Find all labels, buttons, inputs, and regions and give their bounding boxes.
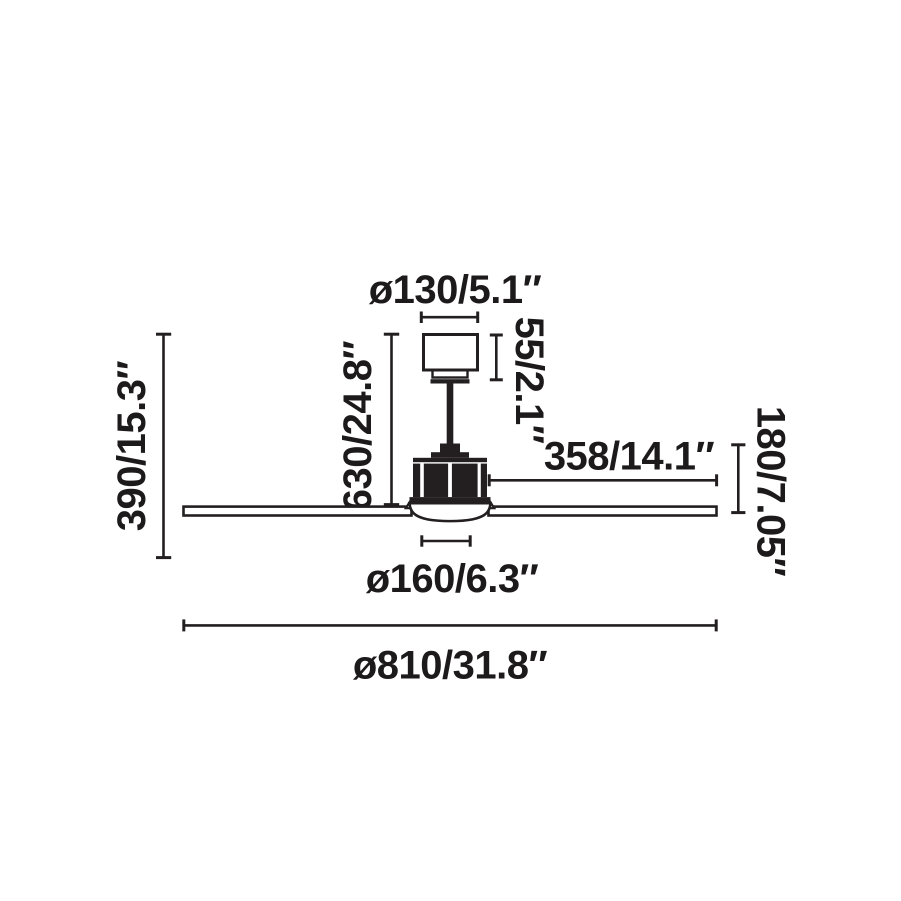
motor-cage-segment <box>481 464 487 498</box>
light-diffuser <box>410 503 491 521</box>
dim-canopy-diameter <box>421 312 478 324</box>
dim-label-canopy-height: 55/2.1″ <box>507 317 551 444</box>
dim-label-light-diameter: ø160/6.3″ <box>366 557 539 601</box>
canopy <box>424 335 478 371</box>
dim-label-blade-length: 358/14.1″ <box>544 435 715 479</box>
dim-body-height <box>731 445 745 513</box>
blade-right <box>489 507 717 516</box>
dim-light-diameter <box>422 535 470 546</box>
motor-bottom-plate <box>410 497 491 502</box>
dim-label-drop-height: 630/24.8″ <box>336 340 380 511</box>
fan-drawing <box>184 335 717 522</box>
fan-dimension-diagram: ø130/5.1″ 55/2.1″ 630/24.8″ 390/15.3″ 35… <box>0 0 901 901</box>
dim-label-body-height: 180/7.05″ <box>749 406 793 577</box>
motor-cage-segment <box>452 464 478 498</box>
dim-label-total-height: 390/15.3″ <box>110 360 154 531</box>
dim-canopy-height <box>490 335 503 380</box>
downrod <box>447 384 454 445</box>
motor-top-plate <box>413 458 487 462</box>
dim-drop-height <box>384 334 399 504</box>
dim-label-fan-diameter: ø810/31.8″ <box>353 644 548 688</box>
motor-cage-segment <box>413 464 420 498</box>
motor-cage-segment <box>424 464 448 498</box>
blade-left <box>184 507 412 516</box>
rod-coupling-upper <box>440 444 460 454</box>
dim-label-canopy-diameter: ø130/5.1″ <box>369 268 542 312</box>
dim-total-height <box>156 334 171 557</box>
hanger-bracket <box>431 379 470 383</box>
fan-dimension-diagram-page: ø130/5.1″ 55/2.1″ 630/24.8″ 390/15.3″ 35… <box>0 0 901 901</box>
motor-housing <box>413 464 487 498</box>
dim-fan-diameter <box>184 619 716 631</box>
